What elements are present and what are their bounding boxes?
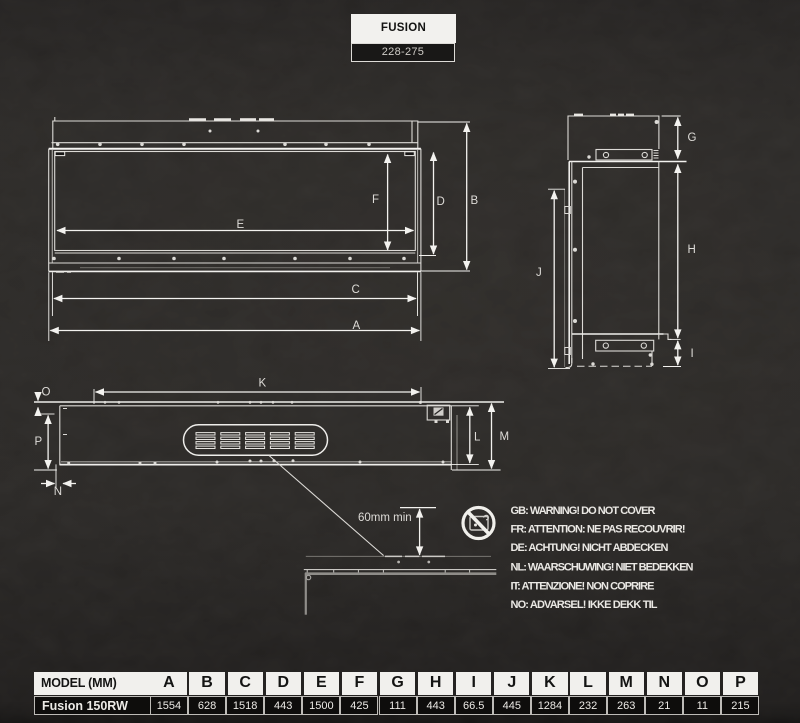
svg-text:H: H xyxy=(688,244,696,256)
svg-text:I: I xyxy=(691,348,694,360)
svg-text:M: M xyxy=(500,431,510,443)
svg-text:G: G xyxy=(688,132,697,144)
svg-text:FR: ATTENTION: NE PAS RECOUVRI: FR: ATTENTION: NE PAS RECOUVRIR! xyxy=(511,524,686,536)
svg-text:GB: WARNING! DO NOT COVER: GB: WARNING! DO NOT COVER xyxy=(511,505,656,517)
svg-text:J: J xyxy=(536,267,542,279)
svg-text:NL: WAARSCHUWING! NIET BEDEKKE: NL: WAARSCHUWING! NIET BEDEKKEN xyxy=(511,562,694,574)
svg-text:L: L xyxy=(474,432,481,444)
svg-text:N: N xyxy=(54,486,62,498)
svg-text:O: O xyxy=(42,387,51,399)
svg-text:NO: ADVARSEL! IKKE DEKK TIL: NO: ADVARSEL! IKKE DEKK TIL xyxy=(511,599,658,611)
svg-text:DE: ACHTUNG! NICHT ABDECKEN: DE: ACHTUNG! NICHT ABDECKEN xyxy=(511,542,669,554)
svg-text:A: A xyxy=(353,320,361,332)
svg-text:P: P xyxy=(35,436,43,448)
svg-text:IT: ATTENZIONE! NON COPRIRE: IT: ATTENZIONE! NON COPRIRE xyxy=(511,581,655,593)
svg-text:F: F xyxy=(372,194,379,206)
svg-text:E: E xyxy=(237,219,245,231)
svg-text:K: K xyxy=(259,378,267,390)
svg-text:C: C xyxy=(352,284,360,296)
svg-text:D: D xyxy=(437,196,445,208)
svg-text:60mm min: 60mm min xyxy=(358,512,412,524)
svg-text:B: B xyxy=(471,195,479,207)
